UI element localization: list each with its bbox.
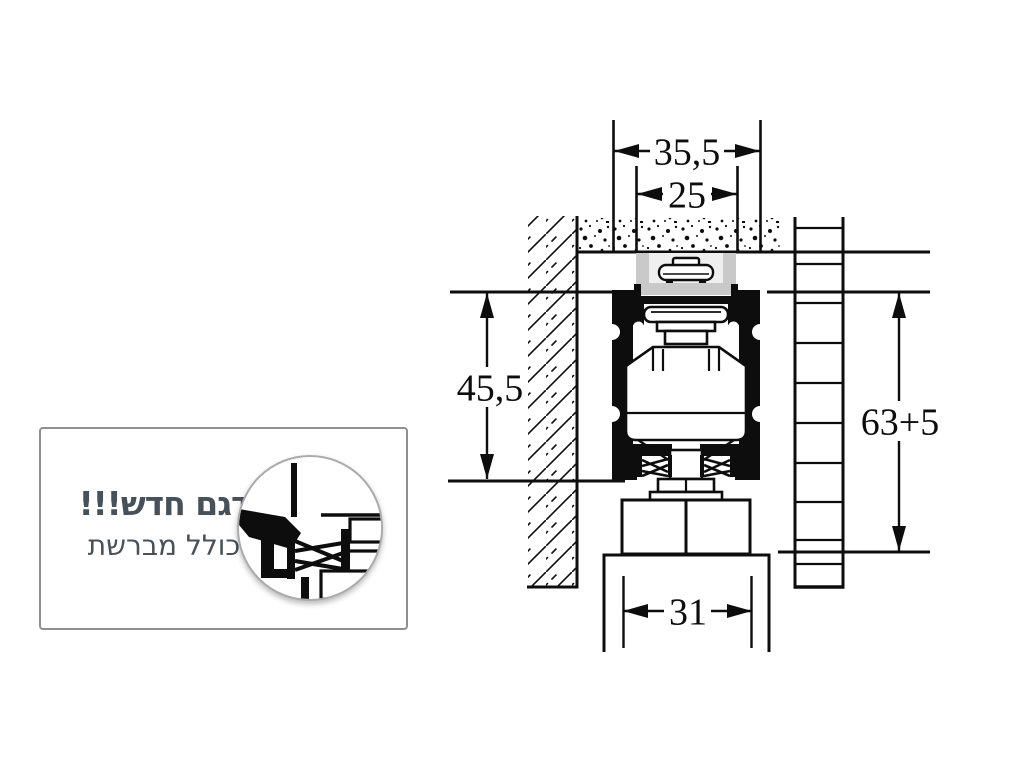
side-panel-ladder bbox=[794, 217, 845, 588]
callout-box: דגם חדש!!! כולל מברשת bbox=[39, 427, 408, 630]
door-clamp bbox=[622, 479, 750, 554]
dim-track-height-label: 45,5 bbox=[457, 367, 524, 409]
track-cross-section-drawing: 35,5 25 45,5 bbox=[0, 0, 1021, 776]
brush-left bbox=[642, 455, 672, 477]
dim-overall-height-label: 63+5 bbox=[861, 401, 939, 443]
hanger-bolt bbox=[670, 450, 702, 479]
brush-detail-inset bbox=[237, 455, 383, 601]
dim-overall-height: 63+5 bbox=[767, 292, 943, 552]
page: 35,5 25 45,5 bbox=[0, 0, 1021, 776]
ceiling-section bbox=[576, 218, 930, 252]
brush-right bbox=[700, 455, 730, 477]
brush-detail-drawing bbox=[239, 457, 381, 599]
dim-door-clamp-width: 31 bbox=[623, 576, 752, 648]
wall-section bbox=[527, 216, 579, 588]
dim-track-outer-width-label: 35,5 bbox=[654, 131, 721, 173]
mounting-bracket bbox=[636, 253, 736, 295]
dim-door-clamp-width-label: 31 bbox=[669, 591, 707, 633]
dim-ceiling-slot-width-label: 25 bbox=[668, 174, 706, 216]
